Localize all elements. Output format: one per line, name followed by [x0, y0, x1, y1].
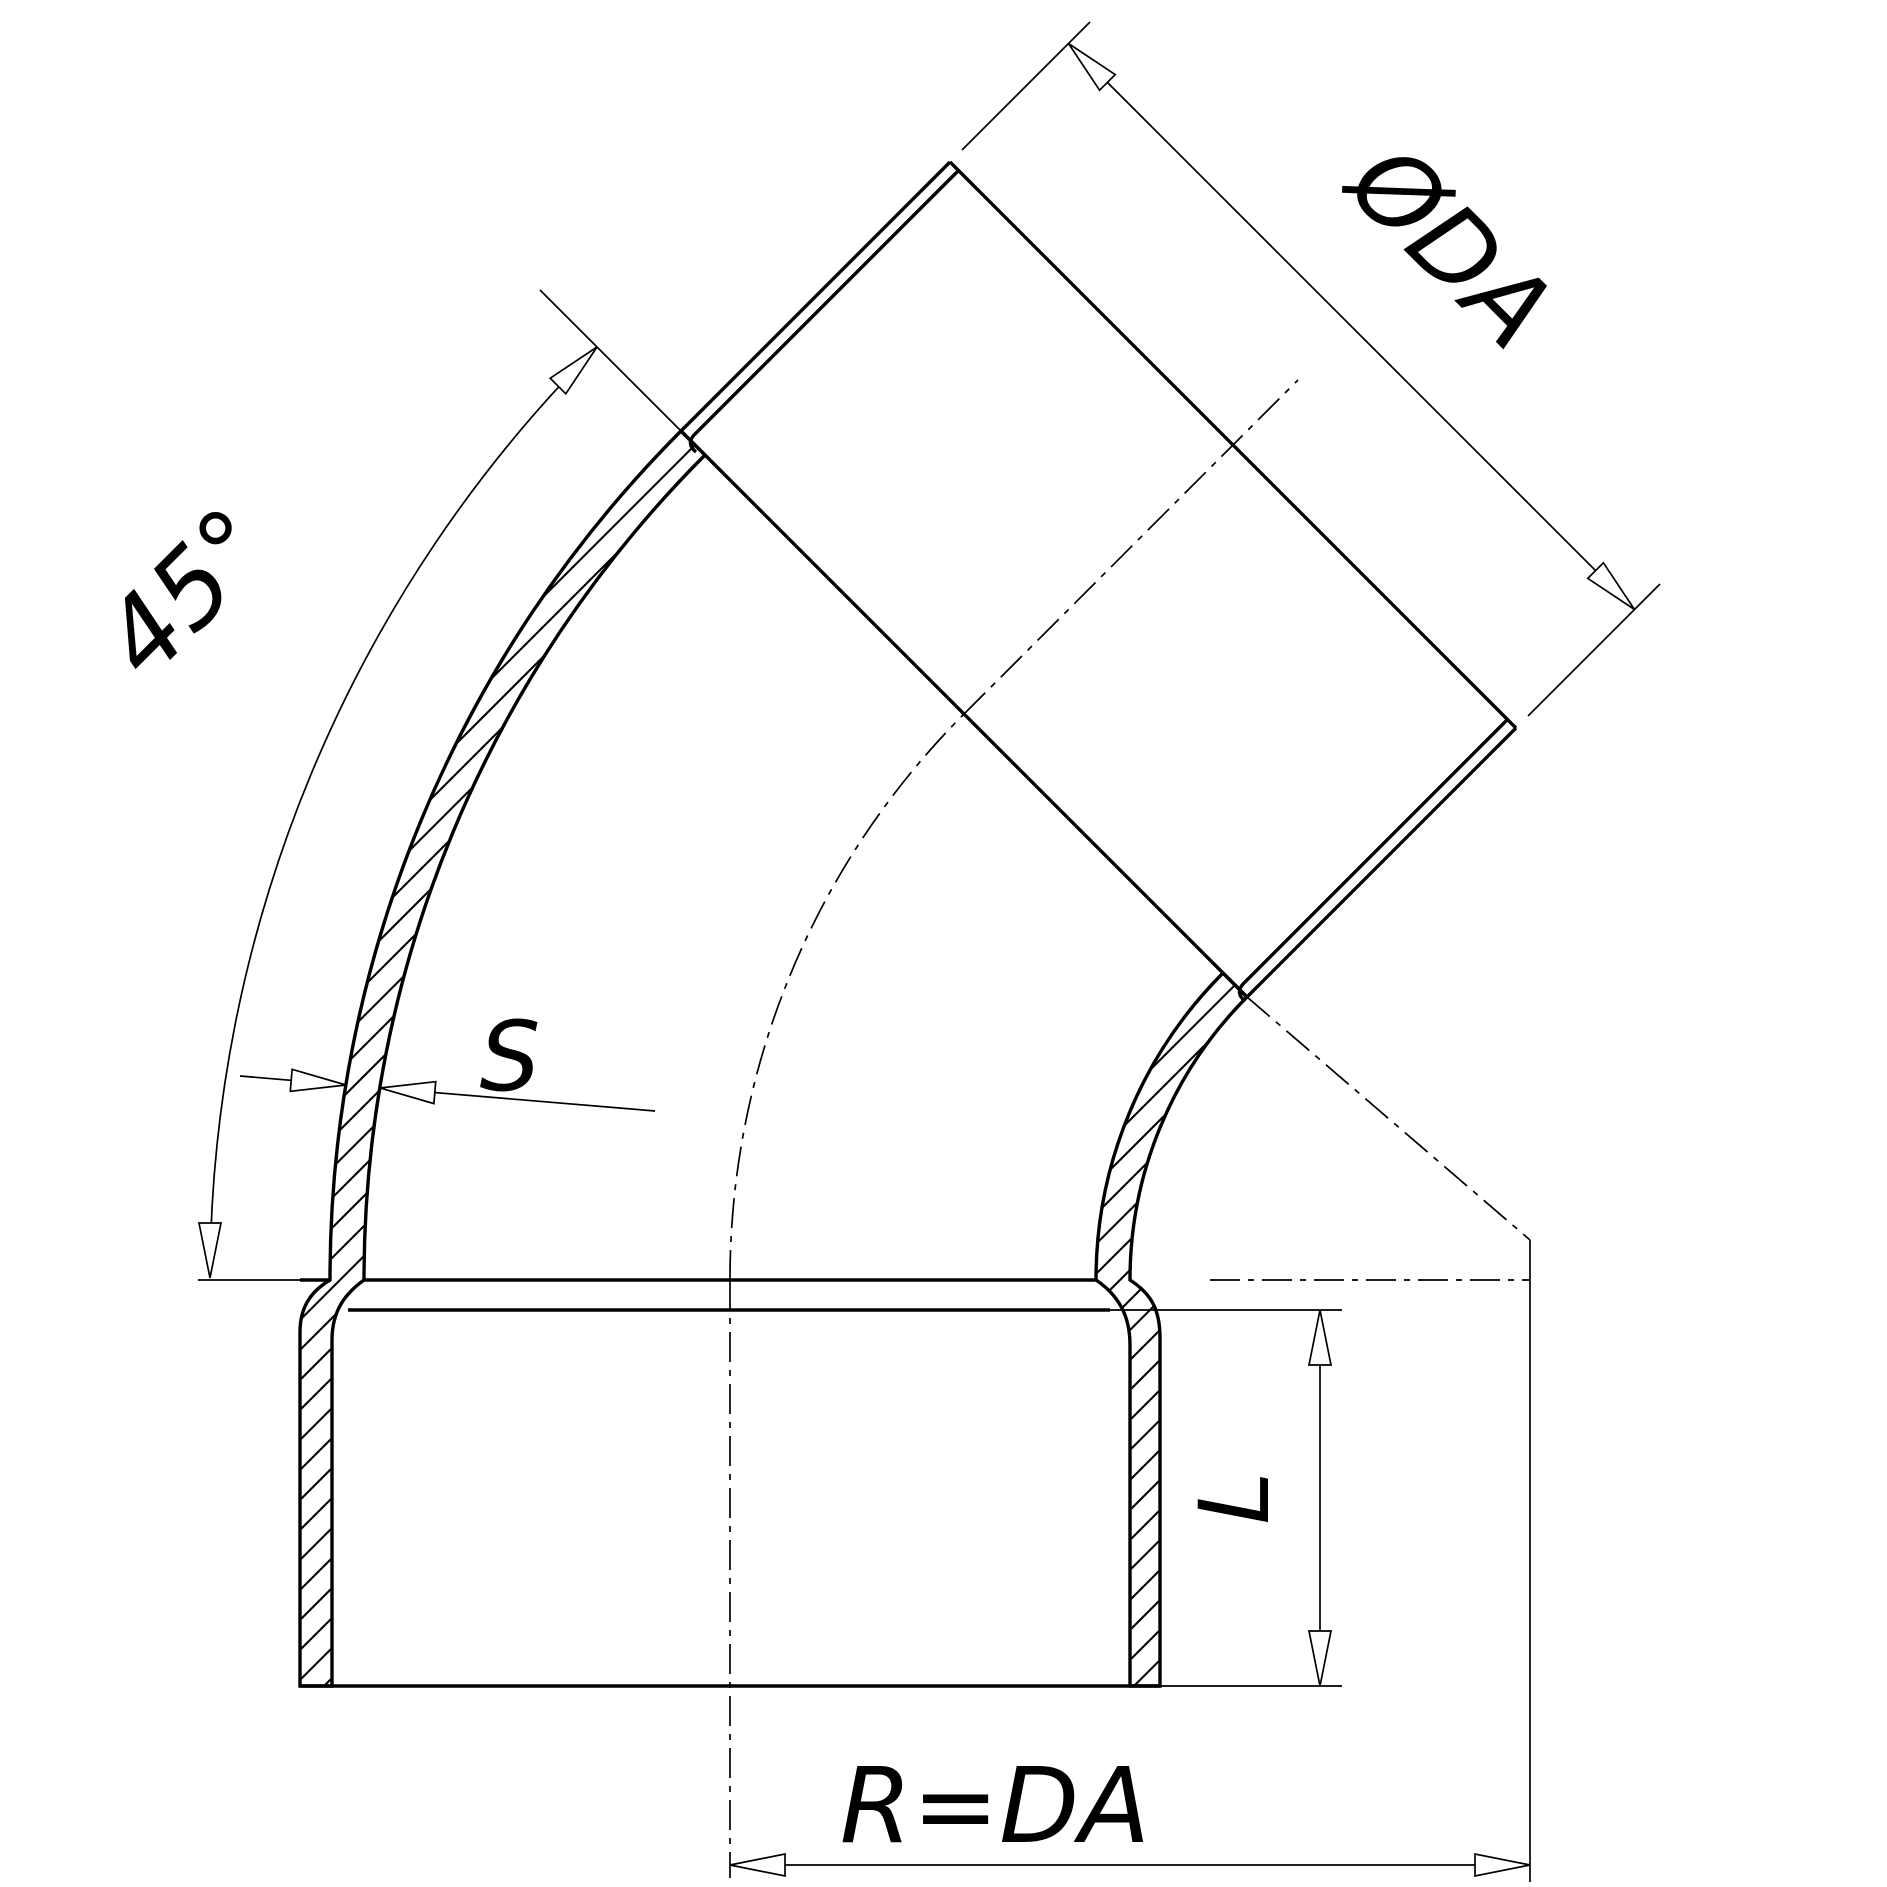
label-bend-radius: R=DA [840, 1745, 1151, 1867]
paper-background [0, 0, 1887, 1887]
label-wall-thickness: S [480, 1001, 541, 1113]
drawing-canvas: ØDA 45° S L R=DA [0, 0, 1887, 1887]
elbow-45-technical-drawing: ØDA 45° S L R=DA [0, 0, 1887, 1887]
label-insertion-length: L [1179, 1471, 1291, 1524]
